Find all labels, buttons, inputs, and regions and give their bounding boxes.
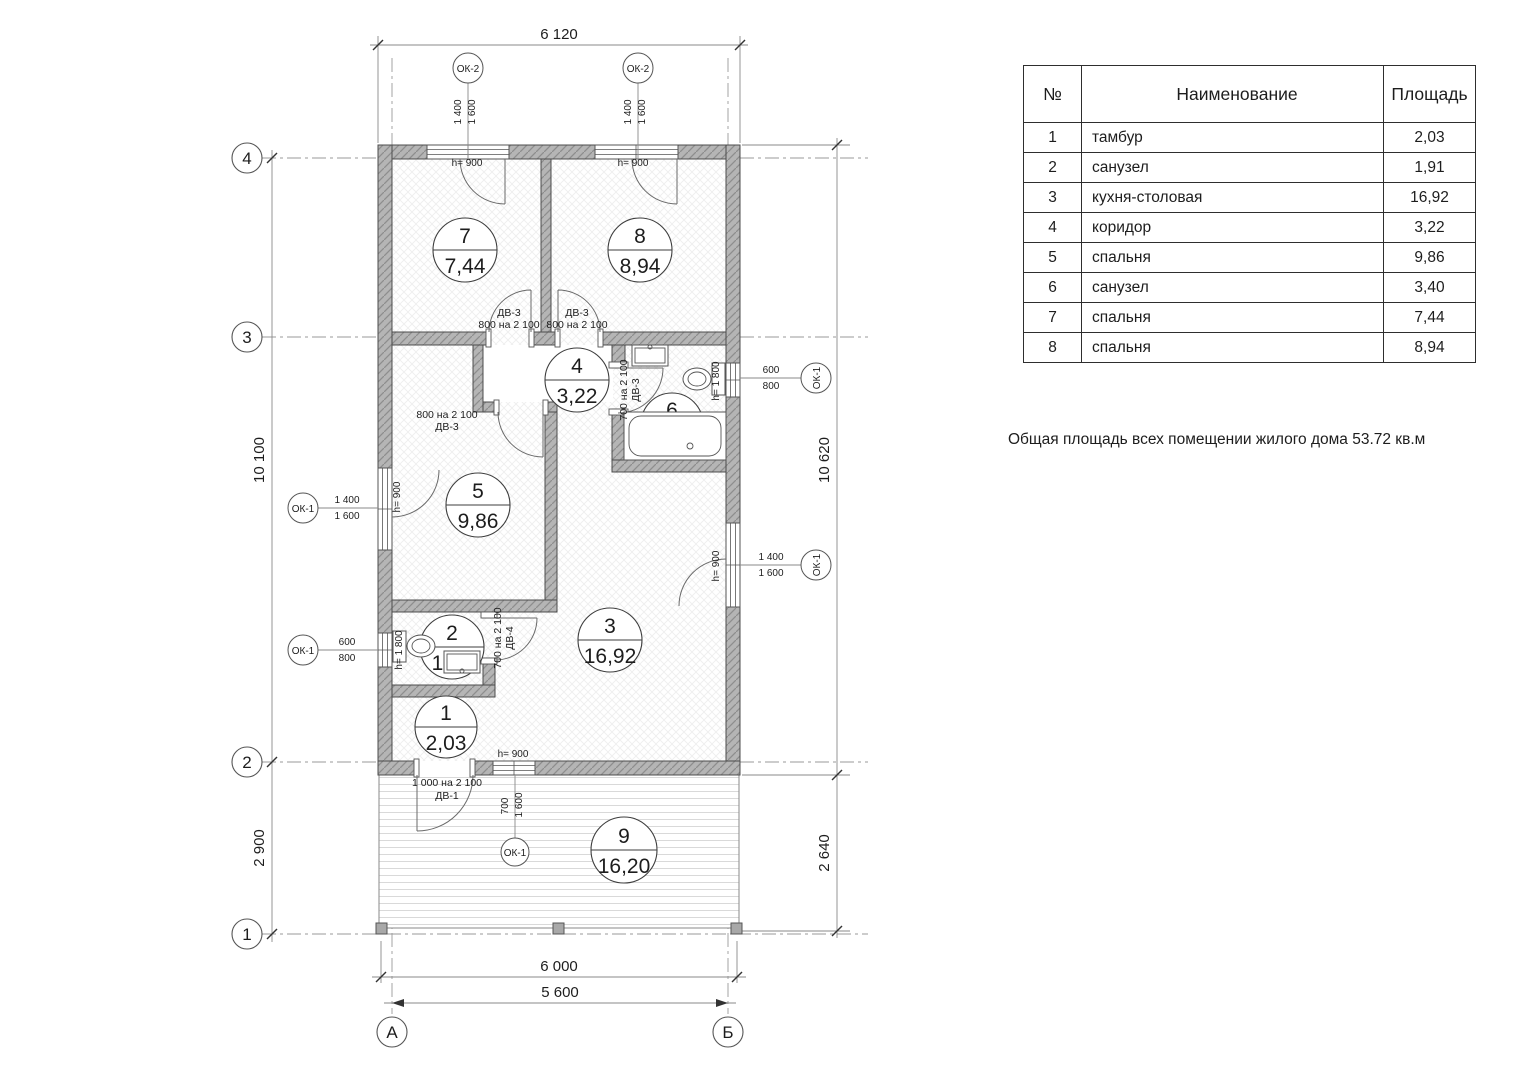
window-size: 1 600	[637, 99, 648, 124]
cell-area: 8,94	[1384, 333, 1476, 363]
table-row: 2 санузел 1,91	[1024, 153, 1476, 183]
axis-label-3: 3	[242, 328, 251, 347]
window-ok1-room3-right	[726, 523, 740, 607]
col-header-area: Площадь	[1384, 66, 1476, 123]
room-number: 7	[459, 225, 471, 248]
sill-height: h= 1 800	[394, 630, 405, 670]
window-size: 800	[339, 653, 356, 664]
window-ok1-room6	[726, 363, 740, 397]
cell-area: 7,44	[1384, 303, 1476, 333]
room-number: 1	[440, 702, 452, 725]
table-header-row: № Наименование Площадь	[1024, 66, 1476, 123]
window-size: 1 400	[334, 495, 359, 506]
dim-bottom-inner: 5 600	[541, 984, 579, 1001]
window-tag-ok2: ОК-2	[627, 64, 650, 75]
door-tag: ДВ-3	[435, 421, 459, 433]
room-stamp-3: 3 16,92	[578, 608, 642, 672]
room-area: 9,86	[458, 510, 499, 533]
room-stamp-9: 9 16,20	[591, 817, 657, 883]
axis-label-4: 4	[242, 149, 251, 168]
dim-right-upper: 10 620	[816, 437, 833, 483]
window-size: 600	[339, 637, 356, 648]
cell-name: санузел	[1082, 153, 1384, 183]
window-ok1-room2	[378, 633, 392, 667]
window-tag-ok1: ОК-1	[292, 646, 315, 657]
col-header-name: Наименование	[1082, 66, 1384, 123]
floor-plan: 7 7,44 8 8,94 4 3,22 6 3,40 5 9,86 2 1,9…	[0, 0, 1000, 1080]
cell-area: 9,86	[1384, 243, 1476, 273]
door-size: 700 на 2 100	[618, 359, 630, 420]
window-tag-ok1: ОК-1	[504, 848, 527, 859]
sill-height: h= 1 800	[711, 361, 722, 401]
room-number: 2	[446, 622, 458, 645]
sill-height: h= 900	[711, 550, 722, 581]
door-size: 800 на 2 100	[546, 319, 607, 331]
room-area: 16,92	[584, 645, 637, 668]
cell-area: 16,92	[1384, 183, 1476, 213]
table-row: 8 спальня 8,94	[1024, 333, 1476, 363]
cell-name: спальня	[1082, 333, 1384, 363]
door-tag: ДВ-3	[630, 378, 642, 402]
room-area: 16,20	[598, 855, 651, 878]
cell-name: спальня	[1082, 243, 1384, 273]
dim-bottom-outer: 6 000	[540, 958, 578, 975]
room-stamp-5: 5 9,86	[446, 473, 510, 537]
room-area: 3,22	[557, 385, 598, 408]
floors	[376, 159, 742, 934]
sill-height: h= 900	[452, 158, 483, 169]
window-size: 1 600	[514, 792, 525, 817]
room-area: 7,44	[445, 255, 486, 278]
window-tag-ok1: ОК-1	[292, 504, 315, 515]
door-tag: ДВ-1	[435, 790, 459, 802]
cell-number: 3	[1024, 183, 1082, 213]
door-size: 800 на 2 100	[416, 409, 477, 421]
cell-number: 1	[1024, 123, 1082, 153]
sink-icon-room2	[444, 651, 480, 673]
sill-height: h= 900	[618, 158, 649, 169]
window-tag-ok1: ОК-1	[812, 553, 823, 576]
table-row: 6 санузел 3,40	[1024, 273, 1476, 303]
window-size: 1 400	[623, 99, 634, 124]
table-row: 5 спальня 9,86	[1024, 243, 1476, 273]
col-header-number: №	[1024, 66, 1082, 123]
window-tag-ok2: ОК-2	[457, 64, 480, 75]
cell-number: 4	[1024, 213, 1082, 243]
door-size: 700 на 2 100	[492, 607, 504, 668]
window-size: 1 600	[467, 99, 478, 124]
axis-label-B: Б	[722, 1023, 733, 1042]
cell-name: санузел	[1082, 273, 1384, 303]
terrace-deck	[379, 776, 739, 928]
total-area-note: Общая площадь всех помещении жилого дома…	[1008, 431, 1425, 449]
sill-height: h= 900	[498, 749, 529, 760]
cell-area: 1,91	[1384, 153, 1476, 183]
dim-left-lower: 2 900	[251, 829, 268, 867]
room-schedule-table: № Наименование Площадь 1 тамбур 2,03 2 с…	[1023, 65, 1476, 363]
cell-area: 2,03	[1384, 123, 1476, 153]
room-area: 8,94	[620, 255, 661, 278]
door-tag: ДВ-3	[497, 307, 521, 319]
cell-area: 3,40	[1384, 273, 1476, 303]
room-schedule: № Наименование Площадь 1 тамбур 2,03 2 с…	[1023, 65, 1476, 363]
cell-number: 8	[1024, 333, 1082, 363]
cell-name: спальня	[1082, 303, 1384, 333]
dim-right-lower: 2 640	[816, 834, 833, 872]
sink-icon-room6	[632, 345, 668, 366]
cell-number: 6	[1024, 273, 1082, 303]
table-row: 4 коридор 3,22	[1024, 213, 1476, 243]
cell-number: 2	[1024, 153, 1082, 183]
dim-top: 6 120	[540, 26, 578, 43]
room-number: 9	[618, 825, 630, 848]
cell-number: 7	[1024, 303, 1082, 333]
window-ok2-room8	[595, 145, 678, 159]
sill-height: h= 900	[392, 481, 403, 512]
axis-label-A: А	[386, 1023, 398, 1042]
window-size: 600	[763, 365, 780, 376]
room-stamp-4: 4 3,22	[545, 348, 609, 412]
window-size: 1 600	[334, 511, 359, 522]
room-number: 3	[604, 615, 616, 638]
window-size: 1 600	[758, 568, 783, 579]
door-size: 1 000 на 2 100	[412, 777, 482, 789]
window-size: 700	[500, 797, 511, 814]
door-tag: ДВ-3	[565, 307, 589, 319]
window-ok1-room5	[378, 468, 392, 550]
axis-label-1: 1	[242, 925, 251, 944]
door-tag: ДВ-4	[504, 626, 516, 650]
table-row: 3 кухня-столовая 16,92	[1024, 183, 1476, 213]
door-size: 800 на 2 100	[478, 319, 539, 331]
room-stamp-7: 7 7,44	[433, 218, 497, 282]
room-number: 5	[472, 480, 484, 503]
window-size: 1 400	[453, 99, 464, 124]
table-row: 7 спальня 7,44	[1024, 303, 1476, 333]
cell-name: коридор	[1082, 213, 1384, 243]
cell-name: кухня-столовая	[1082, 183, 1384, 213]
dim-left-upper: 10 100	[251, 437, 268, 483]
room-number: 8	[634, 225, 646, 248]
window-ok1-room3-bottom	[493, 761, 535, 775]
bathtub-icon	[624, 412, 726, 460]
axis-label-2: 2	[242, 753, 251, 772]
cell-number: 5	[1024, 243, 1082, 273]
window-size: 1 400	[758, 552, 783, 563]
room-stamp-1: 1 2,03	[415, 696, 477, 758]
window-size: 800	[763, 381, 780, 392]
window-tag-ok1: ОК-1	[812, 366, 823, 389]
table-row: 1 тамбур 2,03	[1024, 123, 1476, 153]
cell-area: 3,22	[1384, 213, 1476, 243]
room-stamp-8: 8 8,94	[608, 218, 672, 282]
room-area: 2,03	[426, 732, 467, 755]
room-number: 4	[571, 355, 583, 378]
cell-name: тамбур	[1082, 123, 1384, 153]
